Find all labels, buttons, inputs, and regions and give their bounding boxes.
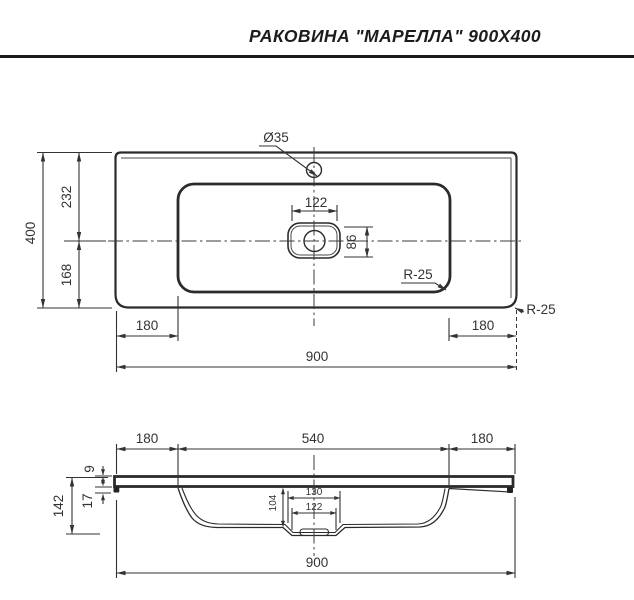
section-left-offset-label: 180 (136, 431, 159, 446)
left-offset-label: 180 (136, 318, 159, 333)
technical-drawing: Ø35 400 232 168 122 86 R-25 R-25 (0, 0, 634, 600)
basin-radius-leader (401, 283, 446, 290)
faucet-diameter-label: Ø35 (263, 130, 289, 145)
drain-width-label: 122 (305, 195, 328, 210)
outer-radius-label: R-25 (526, 302, 555, 317)
basin-depth-label: 104 (268, 494, 279, 511)
right-offset-label: 180 (472, 318, 495, 333)
section-view: 180 540 180 9 17 142 104 130 122 (51, 431, 515, 578)
drain-depth-label: 86 (344, 234, 359, 249)
countertop-edge-offset-line (121, 158, 511, 298)
back-to-drain-label: 232 (59, 186, 74, 209)
plan-view: Ø35 400 232 168 122 86 R-25 R-25 (23, 130, 556, 372)
faucet-leader-line (259, 146, 317, 176)
recess-inner-width-label: 122 (306, 502, 323, 513)
drain-to-front-label: 168 (59, 264, 74, 287)
slab-thickness-label: 9 (82, 465, 97, 473)
left-drip-lip (114, 487, 120, 493)
plan-overall-width-label: 900 (306, 349, 329, 364)
section-right-offset-label: 180 (471, 431, 494, 446)
basin-width-label: 540 (302, 431, 325, 446)
basin-radius-label: R-25 (403, 267, 432, 282)
depth-extension-lines (37, 153, 112, 309)
section-top-extension-lines (117, 444, 516, 485)
drawing-page: РАКОВИНА "МАРЕЛЛА" 900X400 (0, 0, 634, 600)
front-edge-height-label: 17 (80, 493, 95, 508)
recess-outer-width-label: 130 (306, 487, 323, 498)
section-overall-width-label: 900 (306, 555, 329, 570)
total-height-label: 142 (51, 495, 66, 518)
right-underside-line (449, 489, 510, 493)
overall-depth-label: 400 (23, 222, 38, 245)
